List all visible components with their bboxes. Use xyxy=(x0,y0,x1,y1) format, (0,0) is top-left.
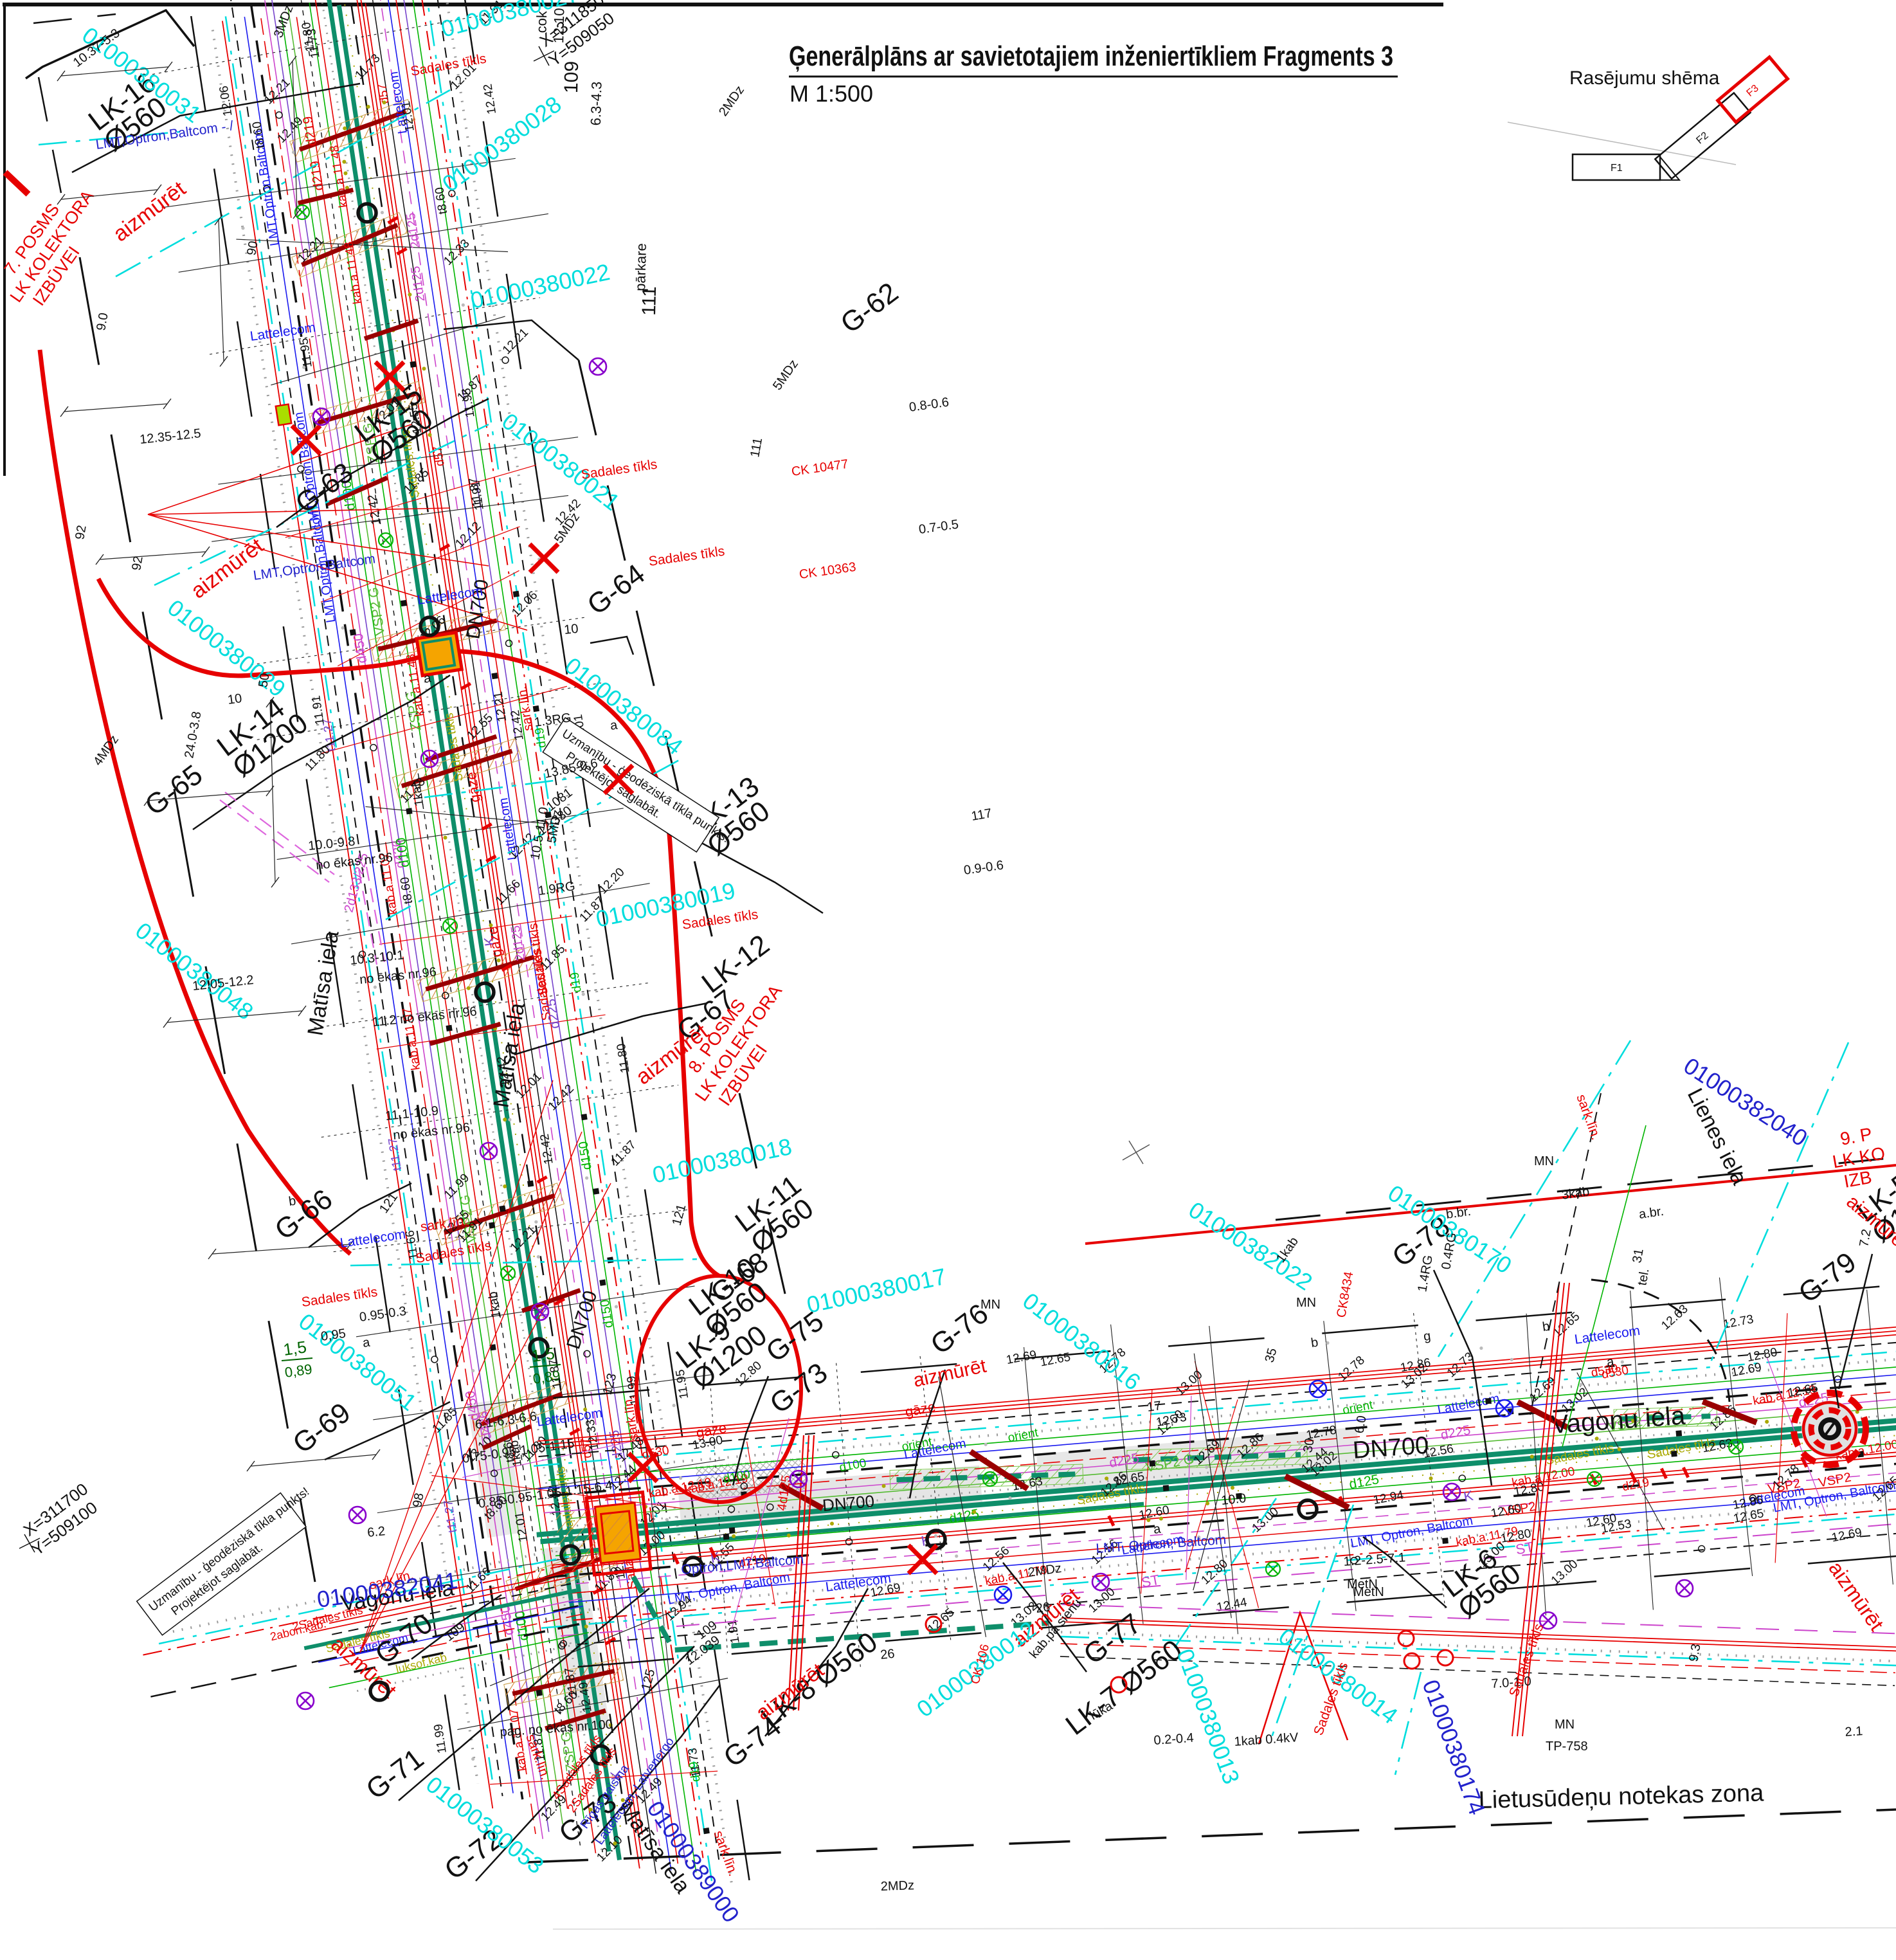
svg-text:MN: MN xyxy=(980,1298,1000,1312)
svg-text:DN700: DN700 xyxy=(1352,1432,1430,1464)
svg-text:0.2-0.4: 0.2-0.4 xyxy=(1153,1731,1195,1748)
svg-text:109: 109 xyxy=(561,61,582,94)
svg-text:pārkare: pārkare xyxy=(632,243,649,291)
svg-text:1,5: 1,5 xyxy=(282,1337,308,1359)
svg-text:6.3-4.3: 6.3-4.3 xyxy=(588,81,605,125)
svg-text:10.0: 10.0 xyxy=(1220,1491,1247,1508)
svg-text:10: 10 xyxy=(563,622,579,637)
svg-text:50: 50 xyxy=(256,672,273,689)
svg-text:92: 92 xyxy=(73,524,89,541)
svg-text:Rasējumu shēma: Rasējumu shēma xyxy=(1569,68,1720,89)
svg-text:6.2: 6.2 xyxy=(366,1524,386,1540)
svg-text:MetN: MetN xyxy=(1347,1577,1378,1592)
svg-text:31: 31 xyxy=(1630,1248,1647,1264)
svg-text:F1: F1 xyxy=(1611,163,1623,174)
svg-text:Ģenerālplāns ar savietotajiem: Ģenerālplāns ar savietotajiem inženiertī… xyxy=(789,41,1393,72)
svg-text:90: 90 xyxy=(244,240,261,257)
svg-text:M 1:500: M 1:500 xyxy=(790,80,873,107)
svg-text:26: 26 xyxy=(880,1647,895,1662)
svg-text:tel.: tel. xyxy=(1635,1267,1652,1287)
svg-text:26: 26 xyxy=(1035,1600,1051,1616)
svg-text:2.1: 2.1 xyxy=(1845,1724,1863,1739)
svg-text:MN: MN xyxy=(1534,1154,1554,1168)
svg-text:ST: ST xyxy=(1140,1572,1160,1591)
svg-text:1,5: 1,5 xyxy=(530,1343,556,1366)
svg-text:92: 92 xyxy=(129,555,146,572)
svg-text:98: 98 xyxy=(410,1492,427,1509)
svg-text:TP-758: TP-758 xyxy=(1546,1739,1588,1754)
svg-text:17: 17 xyxy=(1146,1399,1162,1415)
svg-text:MN: MN xyxy=(1296,1296,1316,1310)
svg-text:10: 10 xyxy=(227,691,243,707)
svg-text:30: 30 xyxy=(1301,1437,1317,1454)
svg-text:MN: MN xyxy=(1555,1718,1575,1732)
svg-text:2MDz: 2MDz xyxy=(880,1878,914,1894)
